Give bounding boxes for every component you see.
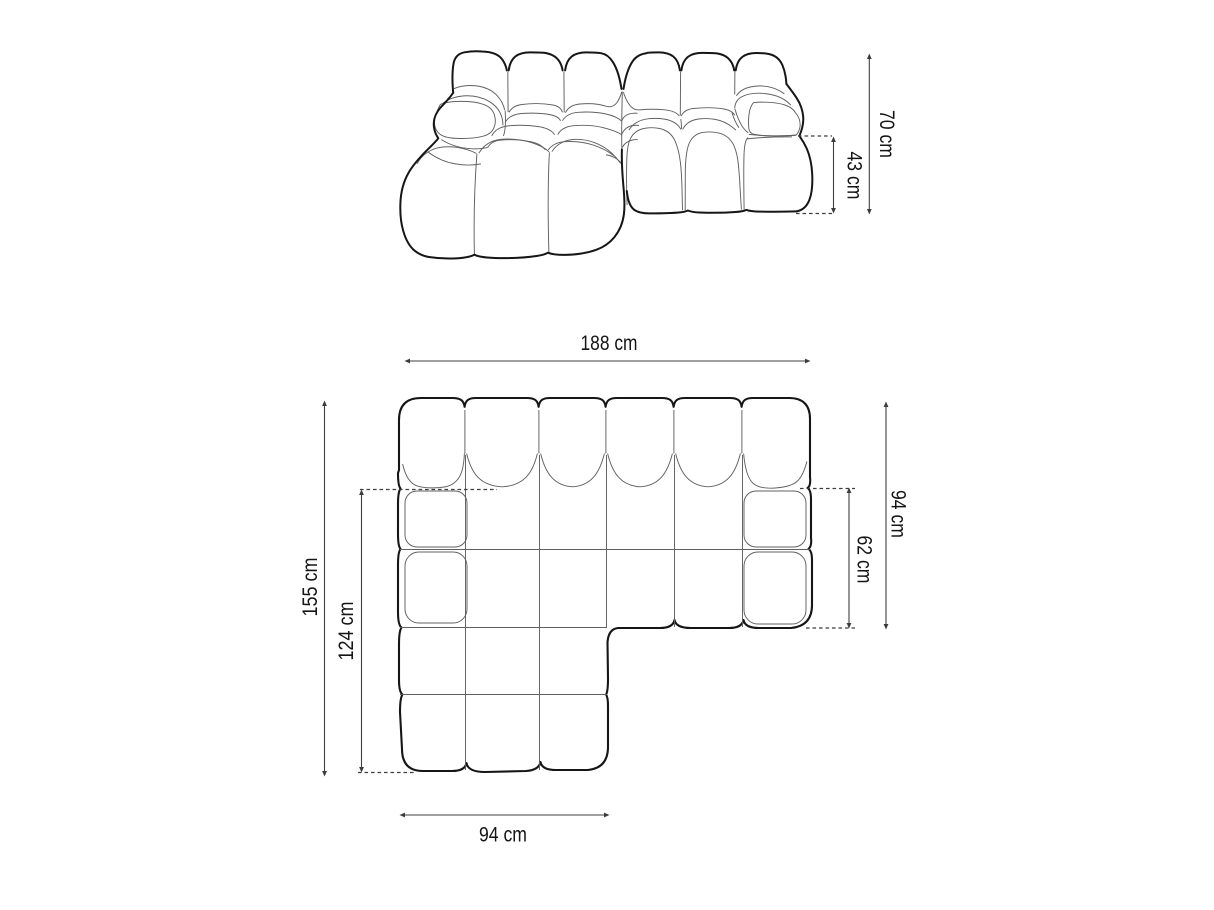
svg-text:62 cm: 62 cm (853, 536, 877, 584)
svg-text:43 cm: 43 cm (843, 152, 867, 200)
svg-text:188 cm: 188 cm (581, 331, 638, 355)
svg-text:94 cm: 94 cm (479, 823, 527, 847)
svg-text:155 cm: 155 cm (298, 558, 322, 617)
svg-text:70 cm: 70 cm (875, 110, 899, 158)
svg-text:94 cm: 94 cm (887, 490, 911, 538)
svg-text:124 cm: 124 cm (334, 602, 358, 661)
